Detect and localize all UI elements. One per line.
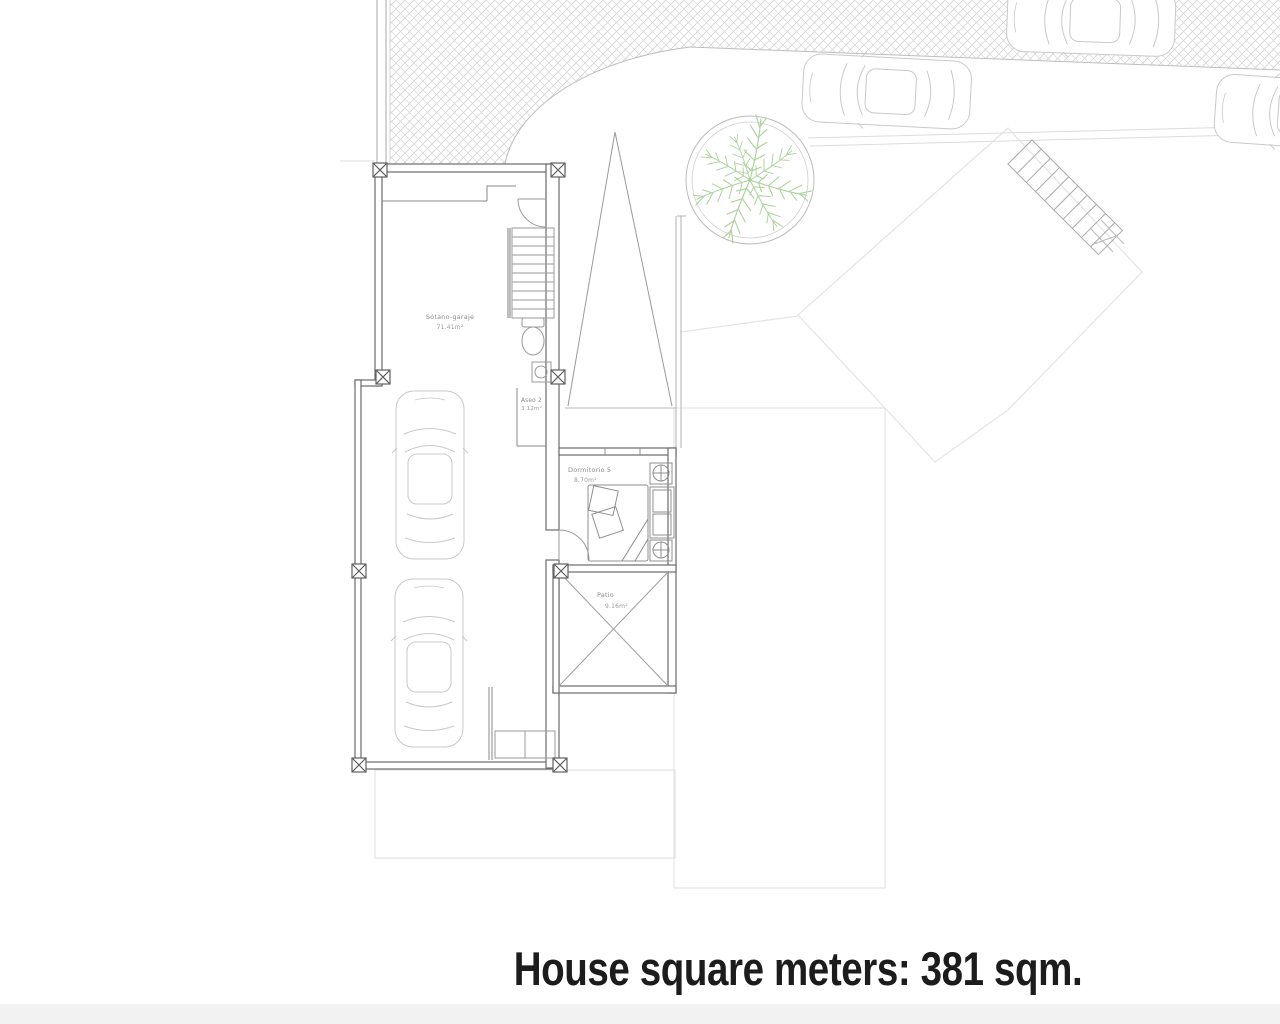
left-wall-upper: [375, 164, 382, 386]
patio-left-wall: [553, 565, 559, 693]
caption-text: House square meters: 381 sqm.: [514, 941, 1083, 996]
floor-plan-image: Sótano-garaje 71.41m² Aseo 2 3.12m² Dorm…: [0, 0, 1280, 1024]
side-yard-rect: [674, 408, 885, 888]
street-car-icon: [1006, 0, 1177, 61]
room-area-patio: 9.16m²: [605, 603, 628, 610]
floor-plan-svg: Sótano-garaje 71.41m² Aseo 2 3.12m² Dorm…: [0, 0, 1280, 1024]
street-far-curb: [808, 126, 1280, 146]
upper-floor-diamond: [798, 128, 1142, 462]
right-wall-upper: [546, 164, 559, 530]
patio-bottom-wall: [553, 686, 676, 693]
street-car-icon: [801, 49, 973, 134]
garage-car-icon: [391, 579, 467, 747]
rear-yard-rect: [375, 770, 675, 858]
ramp-triangle: [565, 132, 676, 408]
palm-tree-planter: [676, 113, 814, 448]
blanket-fold: [622, 519, 648, 561]
building: Sótano-garaje 71.41m² Aseo 2 3.12m² Dorm…: [352, 163, 676, 772]
pillow-icon: [592, 507, 624, 539]
patio-cross: [559, 572, 668, 686]
plot-boundary-lines: [340, 0, 386, 164]
garage-car-icon: [392, 391, 468, 559]
toilet-tank: [522, 318, 544, 327]
room-label-garage: Sótano-garaje: [426, 313, 474, 321]
footer-strip: [0, 1004, 1280, 1024]
entry-door: [518, 199, 546, 227]
bottom-wall: [355, 762, 562, 769]
top-wall: [375, 164, 565, 172]
room-label-aseo: Aseo 2: [521, 398, 542, 404]
planter-curb: [676, 216, 686, 448]
exterior-staircase: [1008, 140, 1124, 255]
room-label-dormitorio: Dormitorio 5: [568, 466, 611, 474]
room-area-garage: 71.41m²: [437, 324, 464, 331]
room-area-dormitorio: 8.70m²: [574, 477, 597, 484]
bedroom-furniture: [588, 448, 674, 561]
toilet-icon: [522, 327, 544, 355]
bedroom-door: [559, 530, 589, 560]
bedroom-top-wall: [559, 448, 676, 455]
patio-top-wall: [553, 565, 676, 572]
room-area-aseo: 3.12m²: [521, 405, 542, 412]
street-car-icon: [1213, 69, 1280, 157]
room-label-patio: Patio: [597, 591, 614, 599]
bed-icon: [588, 485, 648, 561]
